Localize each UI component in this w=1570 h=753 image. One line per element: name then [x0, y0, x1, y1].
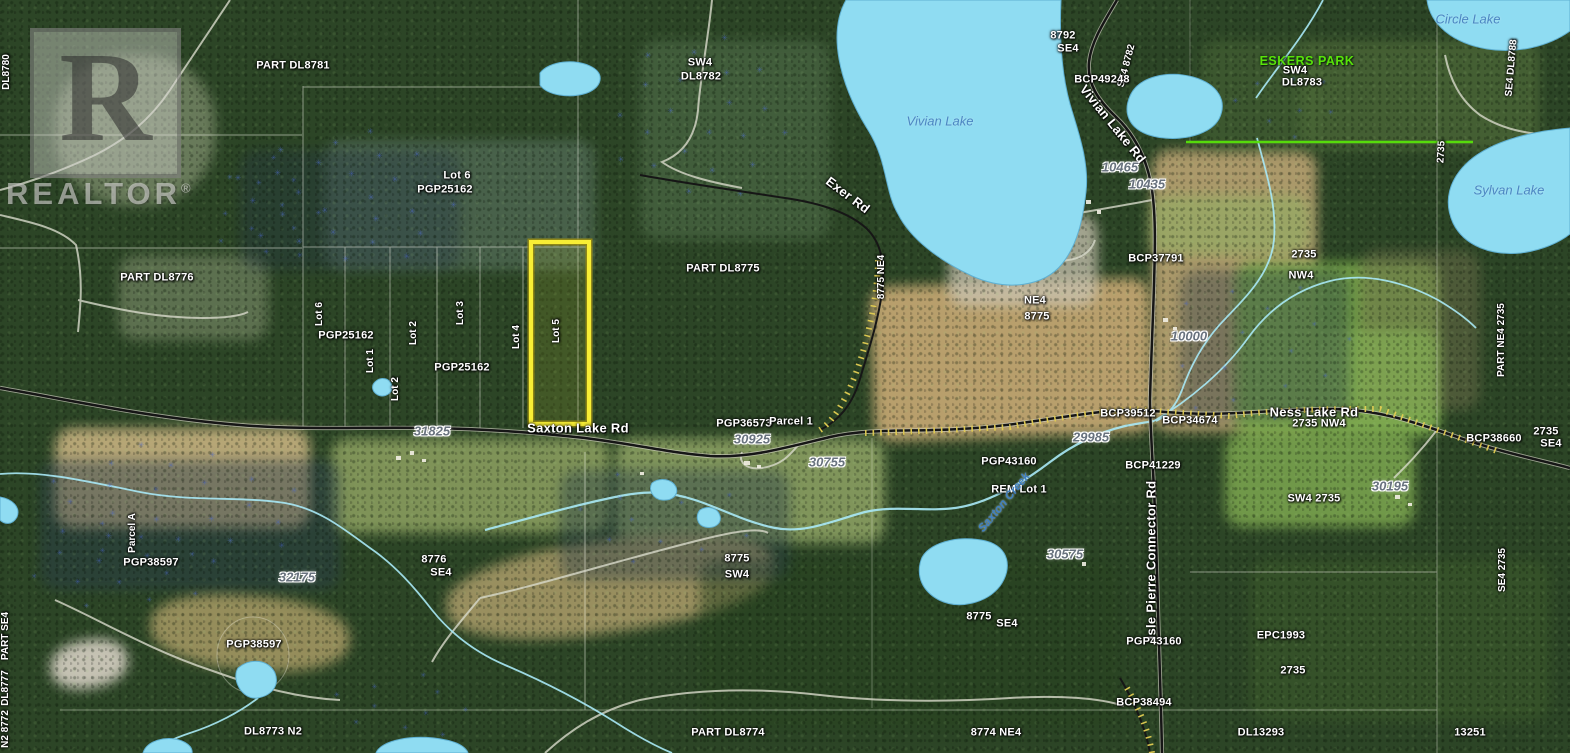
map-label-part-dl8776-22: PART DL8776	[120, 273, 194, 284]
map-label-part-ne4-2735-40: PART NE4 2735	[1497, 303, 1507, 377]
map-label-30575-69: 30575	[1047, 548, 1083, 561]
map-label-2735-14: 2735	[1436, 141, 1447, 164]
map-label-se4-2735-78: SE4 2735	[1498, 548, 1508, 592]
map-label-2735-38: 2735	[1291, 250, 1316, 261]
map-label-circle-lake-12: Circle Lake	[1435, 13, 1500, 26]
map-label-se4-dl8788-13: SE4 DL8788	[1505, 39, 1520, 97]
map-label-lot-2-27: Lot 2	[391, 377, 401, 401]
map-label-part-dl8781-1: PART DL8781	[256, 61, 330, 72]
map-label-bcp49248-7: BCP49248	[1074, 75, 1129, 86]
map-label-exer-rd-17: Exer Rd	[824, 174, 873, 215]
map-label-8775-35: 8775	[1024, 312, 1049, 323]
map-label-nw4-39: NW4	[1288, 271, 1313, 282]
map-label-lot-2-26: Lot 2	[409, 321, 419, 345]
map-label-saxton-creek-68: Saxton Creek	[977, 471, 1033, 535]
map-label-lot-3-28: Lot 3	[456, 301, 466, 325]
map-label-2735-53: 2735	[1533, 427, 1558, 438]
map-label-saxton-lake-rd-41: Saxton Lake Rd	[527, 422, 629, 435]
map-label-n2-8772-61: N2 8772	[1, 710, 11, 748]
map-label-dl8773-n2-83: DL8773 N2	[244, 727, 302, 738]
map-label-lot-5-30: Lot 5	[552, 319, 562, 343]
map-label-30755-46: 30755	[809, 456, 845, 469]
map-label-se4-75: SE4	[996, 619, 1017, 630]
map-label-se4-5: SE4	[1057, 44, 1078, 55]
map-label-lot-6-20: Lot 6	[443, 171, 470, 182]
map-label-bcp37791-36: BCP37791	[1128, 254, 1183, 265]
map-label-ne4-34: NE4	[1024, 296, 1046, 307]
map-label-lot-4-29: Lot 4	[512, 325, 522, 349]
map-label-8792-4: 8792	[1050, 31, 1075, 42]
map-label-30925-45: 30925	[734, 433, 770, 446]
map-label-epc1993-79: EPC1993	[1257, 631, 1306, 642]
map-label-pgp43160-72: PGP43160	[1126, 637, 1181, 648]
map-label-8775-ne4-33: 8775 NE4	[877, 255, 887, 299]
map-label-pgp38597-56: PGP38597	[123, 558, 178, 569]
map-label-8776-62: 8776	[421, 555, 446, 566]
map-label-isle-pierre-connector-rd-70: Isle Pierre Connector Rd	[1145, 481, 1158, 640]
map-label-8775-74: 8775	[966, 612, 991, 623]
map-label-bcp38494-73: BCP38494	[1116, 698, 1171, 709]
map-label-dl8782-3: DL8782	[681, 72, 721, 83]
map-label-32175-57: 32175	[279, 571, 315, 584]
map-label-part-dl8775-32: PART DL8775	[686, 264, 760, 275]
map-label-13251-82: 13251	[1454, 728, 1486, 739]
map-label-lot-1-25: Lot 1	[366, 349, 376, 373]
map-label-vivian-lake-rd-8: Vivian Lake Rd	[1078, 82, 1149, 165]
map-label-part-se4-59: PART SE4	[1, 612, 11, 660]
map-label-dl13293-81: DL13293	[1238, 728, 1285, 739]
map-label-bcp41229-71: BCP41229	[1125, 461, 1180, 472]
map-label-pgp25162-24: PGP25162	[318, 331, 373, 342]
map-label-sw4-2: SW4	[688, 58, 712, 69]
satellite-map-canvas[interactable]: ✳✳✳✳✳✳✳✳✳✳✳✳✳✳✳✳✳✳✳✳✳✳✳✳✳✳✳✳✳✳✳✳✳✳✳✳✳✳✳✳…	[0, 0, 1570, 753]
map-label-sw4-2735-77: SW4 2735	[1288, 494, 1341, 505]
map-label-se4-54: SE4	[1540, 439, 1561, 450]
map-label-bcp39512-47: BCP39512	[1100, 409, 1155, 420]
map-label-bcp34674-48: BCP34674	[1162, 416, 1217, 427]
map-label-10000-37: 10000	[1171, 330, 1207, 343]
map-label-2735-nw4-51: 2735 NW4	[1292, 419, 1346, 430]
map-labels-layer: DL8780PART DL8781SW4DL87828792SE4SE4 878…	[0, 0, 1570, 753]
map-label-parcel-1-44: Parcel 1	[769, 417, 813, 428]
map-label-pgp36573-43: PGP36573	[716, 419, 771, 430]
map-label-sylvan-lake-15: Sylvan Lake	[1474, 184, 1545, 197]
map-label-parcel-a-55: Parcel A	[128, 513, 138, 553]
map-label-30195-76: 30195	[1372, 480, 1408, 493]
map-label-vivian-lake-16: Vivian Lake	[907, 115, 974, 128]
map-label-pgp25162-31: PGP25162	[434, 363, 489, 374]
map-label-dl8780-0: DL8780	[2, 54, 12, 90]
map-label-dl8777-60: DL8777	[1, 670, 11, 706]
map-label-8775-64: 8775	[724, 554, 749, 565]
map-label-lot-6-23: Lot 6	[315, 302, 325, 326]
map-label-31825-42: 31825	[414, 425, 450, 438]
map-label-bcp38660-52: BCP38660	[1466, 434, 1521, 445]
map-label-pgp43160-66: PGP43160	[981, 457, 1036, 468]
map-label-sw4-10: SW4	[1283, 66, 1307, 77]
map-label-dl8783-11: DL8783	[1282, 78, 1322, 89]
map-label-pgp38597-58: PGP38597	[226, 640, 281, 651]
map-label-pgp25162-21: PGP25162	[417, 185, 472, 196]
map-label-10465-18: 10465	[1102, 161, 1138, 174]
map-label-se4-63: SE4	[430, 568, 451, 579]
map-label-10435-19: 10435	[1129, 178, 1165, 191]
map-label-sw4-65: SW4	[725, 570, 749, 581]
map-label-29985-49: 29985	[1073, 431, 1109, 444]
map-label-2735-80: 2735	[1280, 666, 1305, 677]
map-label-part-dl8774-84: PART DL8774	[691, 728, 765, 739]
map-label-8774-ne4-85: 8774 NE4	[971, 728, 1022, 739]
